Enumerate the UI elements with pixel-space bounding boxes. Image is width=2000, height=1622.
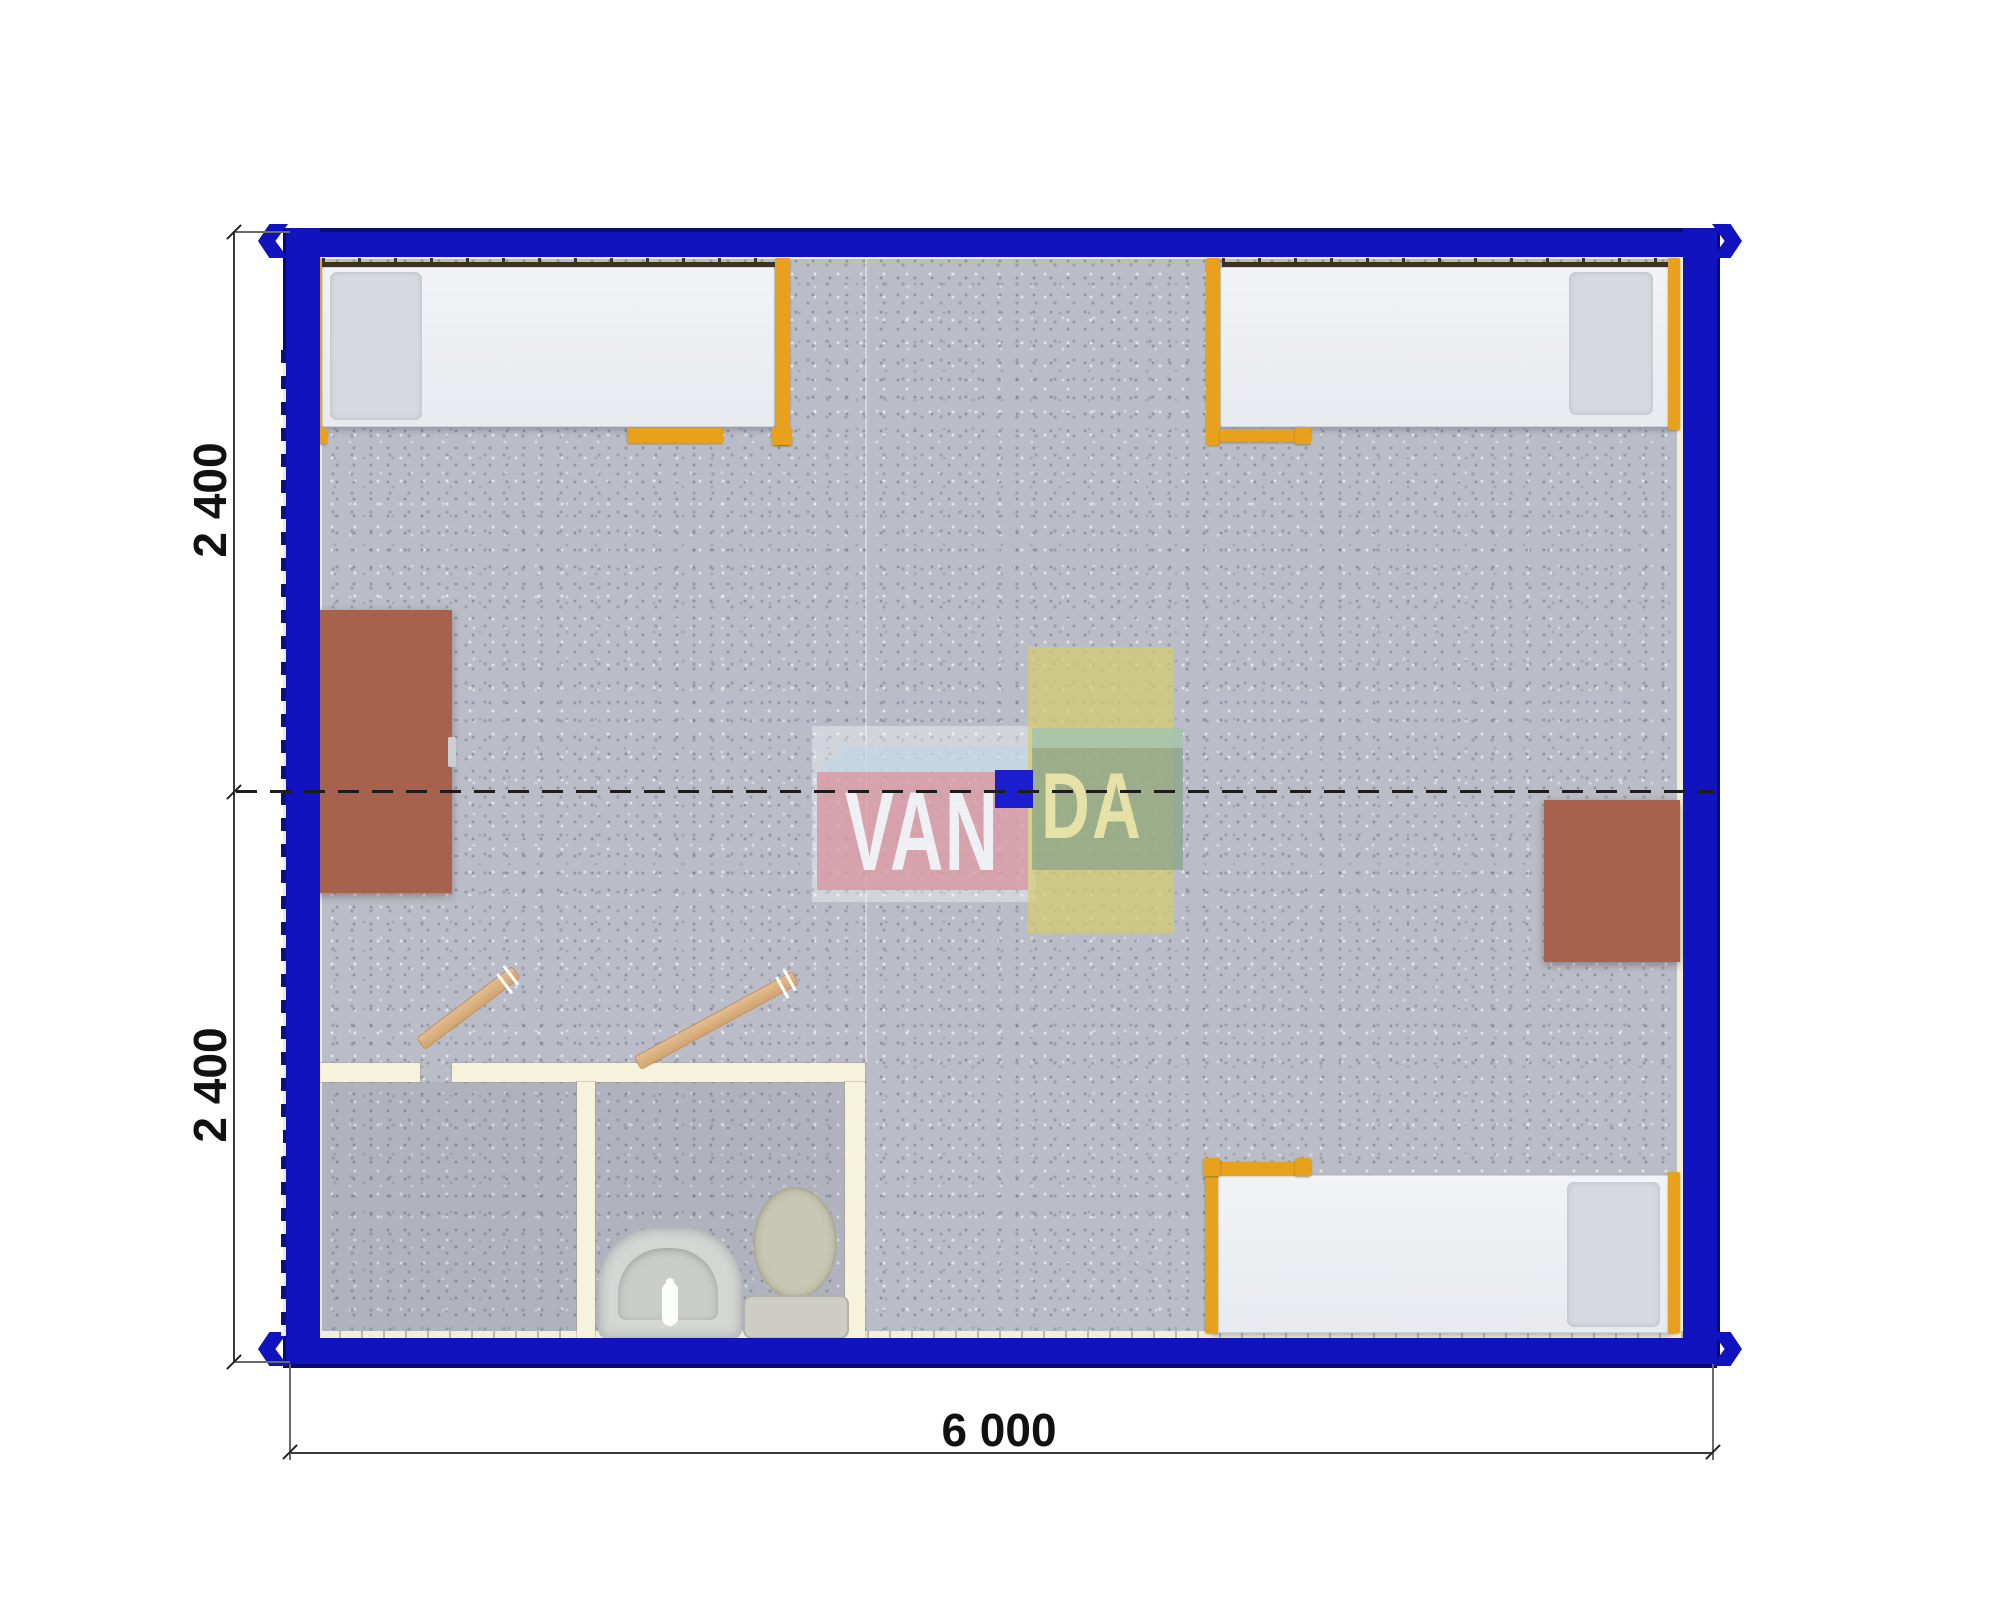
bed-frame-corner xyxy=(1295,1158,1311,1176)
bed-frame-corner xyxy=(1203,1158,1220,1176)
desk-left-handle xyxy=(448,737,456,767)
logo-text-da: DA xyxy=(1049,758,1135,853)
bed-frame-rail xyxy=(627,428,723,443)
desk-right xyxy=(1544,800,1680,962)
bed-frame-rail xyxy=(1206,258,1220,445)
wall-left xyxy=(283,228,320,1364)
logo-green-face: DA xyxy=(1032,728,1183,870)
dim-label-height-bottom: 2 400 xyxy=(188,995,232,1175)
window-strip-right xyxy=(1222,258,1668,267)
logo-green-top-band xyxy=(1032,728,1183,748)
toilet-tank xyxy=(743,1295,849,1339)
floor-plan-drawing: VAN DA 2 400 2 400 6 000 xyxy=(0,0,2000,1622)
toilet-lid xyxy=(753,1187,837,1299)
wall-left-marker xyxy=(275,1127,283,1157)
logo-text-van: VAN xyxy=(845,767,1000,896)
floor-module-seam xyxy=(865,258,867,1063)
bed-frame-corner xyxy=(1295,427,1311,444)
bed-frame-rail xyxy=(775,258,790,445)
bed-frame-rail xyxy=(1668,258,1680,430)
dim-label-height-top: 2 400 xyxy=(188,410,232,590)
dim-label-width: 6 000 xyxy=(909,1408,1089,1452)
wall-bottom xyxy=(283,1338,1717,1368)
bed-pillow xyxy=(1567,1182,1660,1327)
bathroom-wall-divider xyxy=(577,1082,595,1338)
wall-top xyxy=(283,228,1717,257)
logo-blue-square xyxy=(995,770,1033,808)
wall-left-dashed-edge xyxy=(281,350,286,1336)
bathroom-wall-horizontal xyxy=(452,1063,865,1082)
wall-right xyxy=(1683,228,1720,1364)
dim-extension-bottom-left xyxy=(289,1364,291,1460)
bed-pillow xyxy=(1569,272,1653,415)
dim-line-vertical xyxy=(233,232,235,1362)
sink xyxy=(598,1228,742,1339)
sink-faucet-icon xyxy=(662,1282,678,1326)
dim-extension-top xyxy=(233,231,290,233)
dim-extension-bottom-right xyxy=(1712,1364,1714,1460)
bed-frame-rail xyxy=(1668,1172,1680,1333)
bed-frame-rail xyxy=(1205,1162,1218,1333)
bathroom-left-room-floor xyxy=(322,1082,577,1331)
desk-left xyxy=(315,610,452,893)
bed-frame-corner xyxy=(772,428,792,445)
module-split-dashline xyxy=(236,790,1714,793)
bed-pillow xyxy=(330,272,422,420)
dim-extension-middle-bottom xyxy=(233,1361,290,1363)
bathroom-wall-horizontal xyxy=(317,1063,420,1082)
window-strip-left xyxy=(322,258,790,267)
